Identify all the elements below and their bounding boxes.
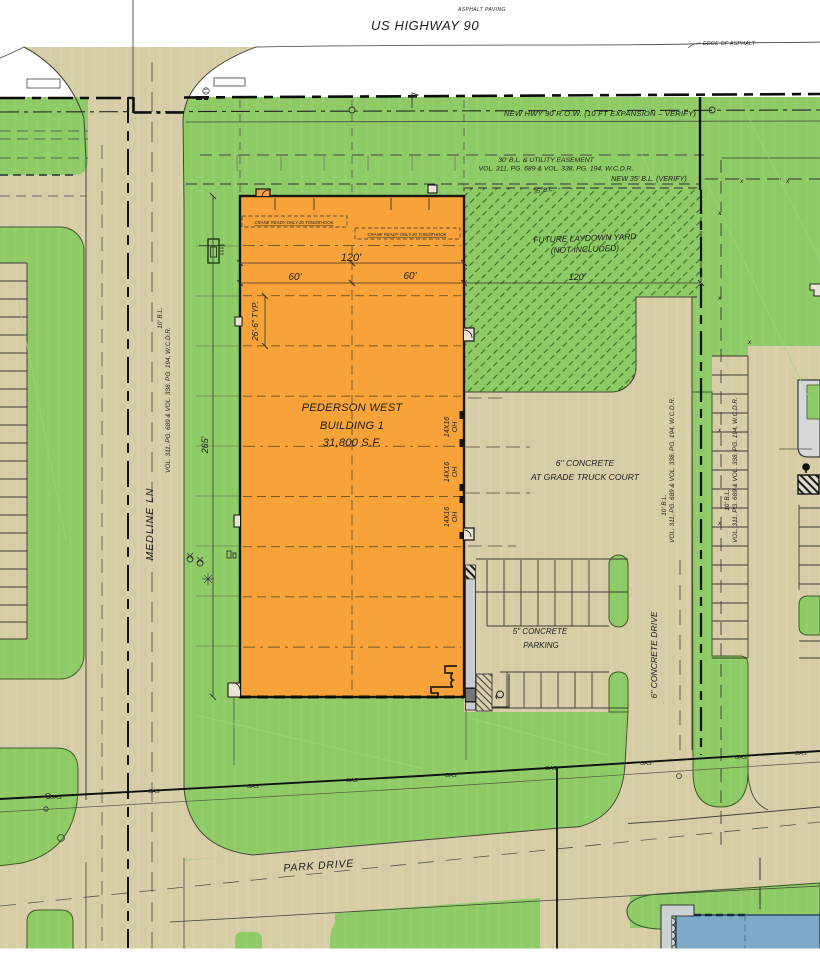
- svg-text:OH: OH: [452, 466, 459, 477]
- svg-text:BUILDING 1: BUILDING 1: [320, 420, 384, 432]
- svg-text:GAS: GAS: [247, 784, 259, 790]
- svg-text:US HIGHWAY 90: US HIGHWAY 90: [371, 18, 479, 33]
- svg-text:PEDERSON WEST: PEDERSON WEST: [302, 402, 404, 414]
- svg-text:VOL. 311, PG. 689 & VOL. 338,: VOL. 311, PG. 689 & VOL. 338, PG. 194, W…: [669, 397, 676, 543]
- svg-text:GAS: GAS: [50, 795, 62, 801]
- svg-text:GAS: GAS: [795, 751, 807, 757]
- svg-text:ASPHALT PAVING: ASPHALT PAVING: [457, 7, 506, 13]
- svg-text:OH: OH: [452, 421, 459, 432]
- svg-text:10' B.L.: 10' B.L.: [724, 489, 731, 510]
- svg-text:PARKING: PARKING: [523, 641, 558, 650]
- svg-text:NEW HWY 90 R.O.W. (10 FT EXPAN: NEW HWY 90 R.O.W. (10 FT EXPANSION – VER…: [504, 109, 696, 118]
- svg-text:CRANE READY ONLY-20 TON/20'HOO: CRANE READY ONLY-20 TON/20'HOOK: [255, 220, 335, 225]
- svg-text:VOL. 311, PG. 689 & VOL. 338,: VOL. 311, PG. 689 & VOL. 338, PG. 194, W…: [732, 397, 739, 543]
- svg-text:5" CONCRETE: 5" CONCRETE: [513, 627, 568, 636]
- svg-text:120': 120': [341, 252, 362, 264]
- svg-text:14X16: 14X16: [444, 507, 451, 527]
- svg-text:14X16: 14X16: [444, 462, 451, 482]
- svg-text:GAS: GAS: [545, 766, 557, 772]
- svg-text:30' B.L. & UTILITY EASEMENT: 30' B.L. & UTILITY EASEMENT: [498, 157, 594, 164]
- svg-text:31,800 S.F.: 31,800 S.F.: [323, 437, 382, 449]
- svg-text:GAS: GAS: [346, 778, 358, 784]
- svg-text:EDGE OF ASPHALT: EDGE OF ASPHALT: [703, 41, 756, 47]
- svg-text:265': 265': [200, 436, 210, 454]
- svg-text:14X16: 14X16: [444, 417, 451, 437]
- svg-text:AT GRADE TRUCK COURT: AT GRADE TRUCK COURT: [530, 472, 640, 482]
- svg-text:60': 60': [403, 271, 417, 282]
- svg-text:60': 60': [288, 272, 302, 283]
- svg-text:GAS: GAS: [640, 761, 652, 767]
- svg-text:NEW 35' B.L. (VERIFY): NEW 35' B.L. (VERIFY): [611, 174, 687, 183]
- svg-text:OH: OH: [452, 511, 459, 522]
- svg-text:10' B.L.: 10' B.L.: [157, 307, 164, 328]
- svg-text:10' B.L.: 10' B.L.: [661, 494, 668, 515]
- svg-text:6" CONCRETE: 6" CONCRETE: [556, 458, 615, 468]
- svg-text:VOL. 311, PG. 689 & VOL. 338,: VOL. 311, PG. 689 & VOL. 338, PG. 194, W…: [165, 327, 172, 473]
- svg-text:GAS: GAS: [735, 755, 747, 761]
- svg-text:CRANE READY ONLY-20 TON/20'HOO: CRANE READY ONLY-20 TON/20'HOOK: [368, 232, 448, 237]
- svg-text:GAS: GAS: [445, 773, 457, 779]
- svg-text:VOL. 311, PG. 689 & VOL. 338,: VOL. 311, PG. 689 & VOL. 338, PG. 194, W…: [479, 166, 634, 173]
- svg-text:120': 120': [569, 272, 586, 282]
- svg-text:26'-6" TYP.: 26'-6" TYP.: [251, 301, 260, 341]
- svg-text:MEDLINE LN: MEDLINE LN: [144, 487, 156, 560]
- svg-text:6" CONCRETE DRIVE: 6" CONCRETE DRIVE: [649, 611, 659, 698]
- svg-text:GAS: GAS: [148, 789, 160, 795]
